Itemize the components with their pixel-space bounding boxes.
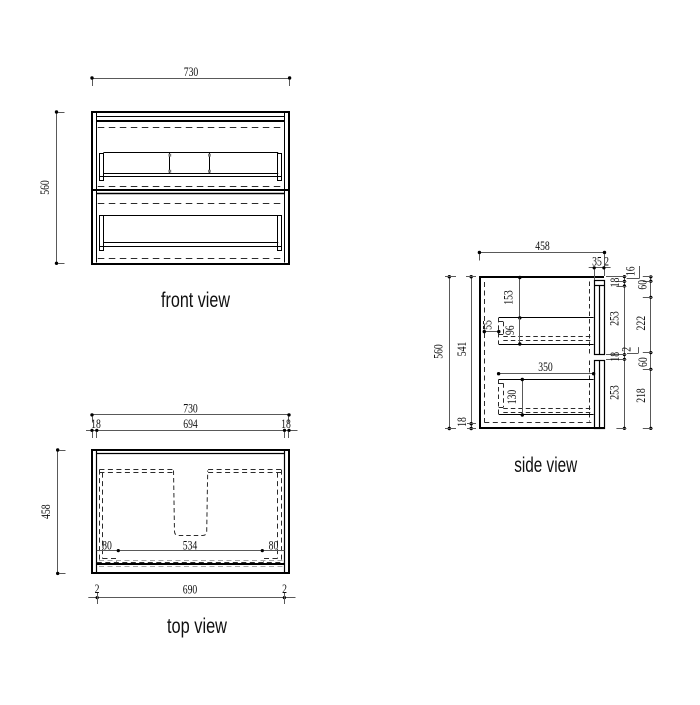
svg-text:694: 694 <box>183 416 198 431</box>
svg-text:2: 2 <box>618 347 633 352</box>
svg-text:18: 18 <box>91 416 101 431</box>
svg-text:55: 55 <box>480 320 495 330</box>
svg-text:80: 80 <box>269 537 279 552</box>
svg-text:690: 690 <box>183 582 198 597</box>
svg-text:730: 730 <box>184 64 199 79</box>
svg-text:front view: front view <box>161 289 231 312</box>
svg-text:18: 18 <box>454 417 469 427</box>
svg-text:35: 35 <box>592 254 602 269</box>
svg-text:458: 458 <box>535 238 550 253</box>
svg-text:218: 218 <box>633 388 648 403</box>
svg-text:153: 153 <box>501 290 516 305</box>
svg-text:253: 253 <box>607 311 622 326</box>
svg-text:2: 2 <box>95 581 100 596</box>
svg-text:top view: top view <box>167 615 228 638</box>
svg-text:730: 730 <box>183 401 198 416</box>
svg-text:534: 534 <box>183 537 198 552</box>
svg-text:560: 560 <box>431 344 446 359</box>
svg-text:222: 222 <box>633 316 648 331</box>
svg-text:541: 541 <box>454 342 469 357</box>
svg-text:80: 80 <box>102 537 112 552</box>
svg-text:96: 96 <box>502 325 517 335</box>
svg-text:560: 560 <box>37 180 52 195</box>
svg-text:458: 458 <box>38 504 53 519</box>
svg-text:253: 253 <box>607 385 622 400</box>
svg-text:16: 16 <box>622 266 637 276</box>
svg-text:130: 130 <box>504 390 519 405</box>
svg-text:2: 2 <box>604 254 609 269</box>
svg-text:2: 2 <box>282 581 287 596</box>
svg-text:60: 60 <box>635 357 650 367</box>
svg-text:side view: side view <box>514 454 578 477</box>
svg-text:60: 60 <box>634 280 649 290</box>
svg-text:350: 350 <box>538 359 553 374</box>
svg-text:18: 18 <box>607 278 622 288</box>
svg-text:18: 18 <box>607 352 622 362</box>
svg-text:18: 18 <box>281 416 291 431</box>
